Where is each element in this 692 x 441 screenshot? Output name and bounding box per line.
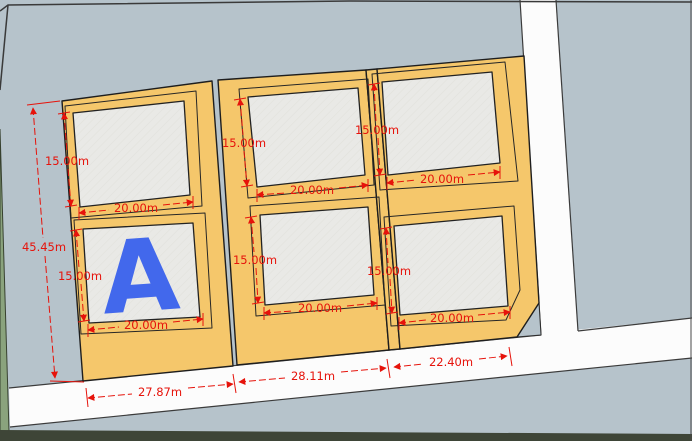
- cad-viewport: 45.45m 15.00m 20.00m 15.00m 20.00m: [0, 0, 692, 441]
- dim-label-frontage-2: 28.11m: [291, 369, 335, 383]
- building-1-upper[interactable]: [73, 101, 190, 207]
- building-2-lower[interactable]: [260, 207, 374, 305]
- building-3-upper[interactable]: [382, 72, 500, 175]
- dim-label: 20.00m: [290, 183, 334, 197]
- dim-label-frontage-3: 22.40m: [429, 355, 473, 369]
- site-plan-canvas: 45.45m 15.00m 20.00m 15.00m 20.00m: [0, 0, 692, 441]
- plot-marker-a[interactable]: A: [97, 215, 182, 337]
- dim-label-total-depth: 45.45m: [22, 240, 66, 254]
- dim-label: 15.00m: [222, 136, 266, 150]
- dim-label: 20.00m: [420, 172, 464, 186]
- dim-label: 15.00m: [45, 154, 89, 168]
- dim-label: 20.00m: [298, 301, 342, 315]
- dim-label: 15.00m: [355, 123, 399, 137]
- building-3-lower[interactable]: [394, 216, 508, 315]
- dim-label: 15.00m: [58, 269, 102, 283]
- dim-label-frontage-1: 27.87m: [138, 385, 182, 399]
- dim-label: 15.00m: [233, 253, 277, 267]
- dim-label: 15.00m: [367, 264, 411, 278]
- dim-label: 20.00m: [430, 311, 474, 325]
- dim-label: 20.00m: [114, 201, 158, 215]
